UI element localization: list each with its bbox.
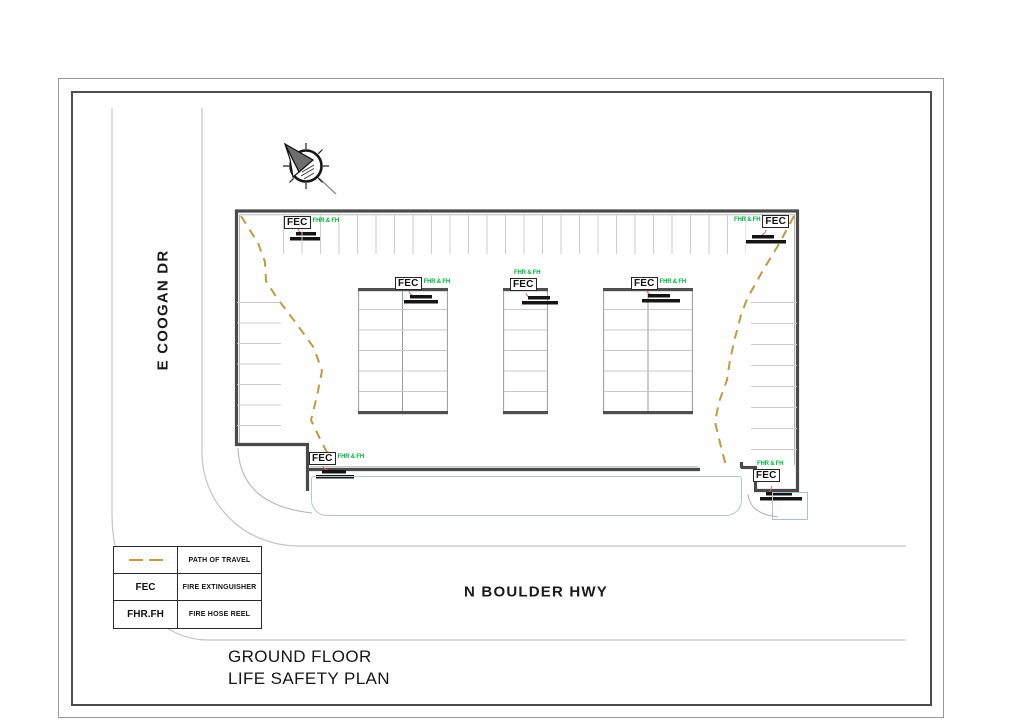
fec-marker-island-middle: FHR & FH FEC (510, 270, 540, 291)
fhr-fh-tag: FHR & FH (660, 279, 686, 286)
fec-marker-top-left: FEC FHR & FH (284, 216, 339, 229)
fhr-fh-tag: FHR & FH (757, 461, 783, 468)
street-label-e-coogan-dr: E COOGAN DR (155, 250, 172, 371)
legend-table: PATH OF TRAVEL FEC FIRE EXTINGUISHER FHR… (113, 546, 262, 629)
fec-marker-bottom-right: FHR & FH FEC (753, 461, 783, 482)
fec-box: FEC (284, 216, 311, 229)
canopy-pad-outline (772, 492, 808, 520)
fhr-fh-tag: FHR & FH (313, 218, 339, 225)
legend-label-fire-extinguisher: FIRE EXTINGUISHER (178, 574, 261, 601)
fhr-fh-tag: FHR & FH (424, 279, 450, 286)
parking-island-left (358, 288, 448, 414)
dashed-line-symbol (129, 559, 163, 562)
fhr-fh-tag: FHR & FH (734, 217, 760, 224)
legend-symbol-fhr-fh: FHR.FH (114, 601, 178, 628)
fec-marker-island-right: FEC FHR & FH (631, 277, 686, 290)
fhr-fh-tag: FHR & FH (338, 454, 364, 461)
fhr-fh-tag: FHR & FH (514, 270, 540, 277)
sheet-title-line2: LIFE SAFETY PLAN (228, 668, 390, 690)
canopy-outline (311, 476, 742, 516)
fec-box: FEC (309, 452, 336, 465)
fec-marker-island-left: FEC FHR & FH (395, 277, 450, 290)
fec-box: FEC (753, 469, 780, 482)
fec-box: FEC (395, 277, 422, 290)
left-parking-stalls (237, 302, 281, 427)
legend-symbol-fec: FEC (114, 574, 178, 601)
top-parking-stalls (283, 215, 746, 254)
parking-island-middle (503, 288, 548, 414)
fec-marker-top-right: FEC FHR & FH (734, 215, 789, 228)
fec-marker-bottom-left: FEC FHR & FH (309, 452, 364, 465)
fec-box: FEC (762, 215, 789, 228)
right-parking-stalls (751, 302, 797, 451)
legend-symbol-path-of-travel (114, 547, 178, 574)
street-label-n-boulder-hwy: N BOULDER HWY (464, 584, 608, 601)
sheet-title-line1: GROUND FLOOR (228, 646, 390, 668)
fec-box: FEC (631, 277, 658, 290)
life-safety-plan-sheet: FEC FHR & FH FEC FHR & FH FHR & FH FEC F… (0, 0, 1024, 724)
fec-leader-lines (298, 229, 772, 493)
sheet-title: GROUND FLOOR LIFE SAFETY PLAN (228, 646, 390, 690)
north-arrow-icon (283, 143, 336, 194)
legend-label-path-of-travel: PATH OF TRAVEL (178, 547, 261, 574)
parking-island-right (603, 288, 693, 414)
fec-box: FEC (510, 278, 537, 291)
legend-label-fire-hose-reel: FIRE HOSE REEL (178, 601, 261, 628)
